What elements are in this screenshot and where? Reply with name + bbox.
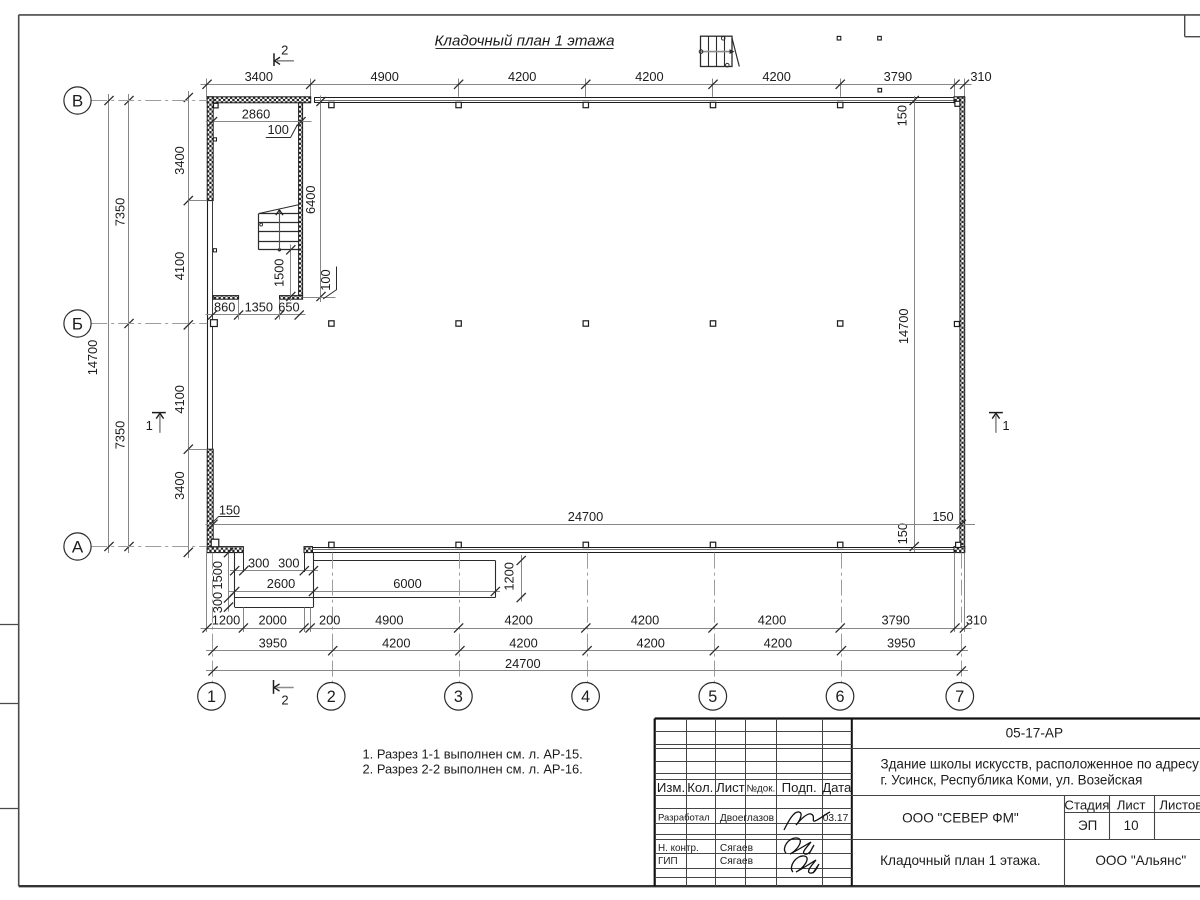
svg-text:Дата: Дата [822,780,852,795]
svg-text:05-17-АР: 05-17-АР [1006,726,1063,741]
svg-text:Сягаев: Сягаев [720,843,753,854]
svg-text:6000: 6000 [393,576,421,591]
svg-text:Подп.: Подп. [782,780,817,795]
svg-text:4900: 4900 [375,613,403,628]
svg-text:7350: 7350 [113,198,128,226]
svg-text:2: 2 [281,43,288,58]
svg-text:24700: 24700 [505,656,541,671]
svg-text:Листов: Листов [1159,797,1200,812]
svg-text:4200: 4200 [635,69,663,84]
svg-text:2000: 2000 [258,613,286,628]
svg-text:310: 310 [966,613,987,628]
svg-text:3: 3 [454,688,463,706]
svg-text:5: 5 [708,688,717,706]
svg-text:ГИП: ГИП [658,856,678,867]
svg-text:4900: 4900 [370,69,398,84]
svg-text:3790: 3790 [884,69,912,84]
svg-text:24700: 24700 [568,509,604,524]
svg-text:Б: Б [72,315,83,334]
svg-text:100: 100 [268,122,289,137]
svg-text:300: 300 [278,555,299,570]
svg-text:Н. контр.: Н. контр. [658,843,699,854]
svg-text:1350: 1350 [245,300,273,315]
svg-text:Кол.: Кол. [687,780,713,795]
svg-text:ЭП: ЭП [1078,818,1097,833]
svg-text:2. Разрез 2-2 выполнен см. л.: 2. Разрез 2-2 выполнен см. л. АР-16. [363,762,583,777]
svg-text:150: 150 [932,509,953,524]
svg-text:г. Усинск, Республика Коми, ул: г. Усинск, Республика Коми, ул. Возейска… [881,773,1143,788]
svg-text:4200: 4200 [509,636,537,651]
svg-text:4100: 4100 [172,385,187,413]
svg-text:650: 650 [278,300,299,315]
svg-text:6: 6 [835,688,844,706]
svg-text:ООО "СЕВЕР ФМ": ООО "СЕВЕР ФМ" [902,811,1019,826]
svg-text:3950: 3950 [887,636,915,651]
svg-text:7: 7 [955,688,964,706]
svg-text:4: 4 [581,688,590,706]
svg-text:1: 1 [1002,418,1009,433]
svg-text:В: В [72,92,83,111]
svg-text:Кладочный план 1 этажа.: Кладочный план 1 этажа. [880,853,1041,868]
svg-text:7350: 7350 [113,421,128,449]
svg-text:ООО "Альянс": ООО "Альянс" [1095,853,1186,868]
svg-text:200: 200 [319,613,340,628]
svg-text:Здание школы искусств, располо: Здание школы искусств, расположенное по … [881,756,1200,771]
svg-text:Лист: Лист [1117,797,1146,812]
svg-text:2: 2 [327,688,336,706]
svg-text:3400: 3400 [245,69,273,84]
svg-text:Разработал: Разработал [658,812,710,823]
svg-text:10: 10 [1124,818,1139,833]
svg-text:1200: 1200 [212,613,240,628]
svg-text:150: 150 [219,503,240,518]
svg-text:150: 150 [894,105,909,126]
svg-text:А: А [72,538,84,557]
svg-text:№док.: №док. [747,783,776,794]
svg-text:4200: 4200 [758,613,786,628]
svg-text:Двоеглазов: Двоеглазов [720,813,774,824]
svg-text:1. Разрез 1-1 выполнен см. л.: 1. Разрез 1-1 выполнен см. л. АР-15. [363,747,583,762]
svg-text:4200: 4200 [636,636,664,651]
svg-text:4200: 4200 [631,613,659,628]
svg-text:4200: 4200 [382,636,410,651]
svg-text:2: 2 [281,692,288,707]
svg-text:1: 1 [146,418,153,433]
svg-text:Кладочный план 1 этажа: Кладочный план 1 этажа [434,32,614,49]
svg-text:6400: 6400 [303,186,318,214]
svg-text:300: 300 [248,555,269,570]
svg-text:1200: 1200 [502,562,517,590]
svg-text:4200: 4200 [508,69,536,84]
svg-text:Сягаев: Сягаев [720,856,753,867]
svg-text:2600: 2600 [267,576,295,591]
svg-text:4100: 4100 [172,252,187,280]
svg-text:Стадия: Стадия [1064,797,1109,812]
svg-text:4200: 4200 [762,69,790,84]
svg-text:1: 1 [207,688,216,706]
svg-text:3400: 3400 [172,146,187,174]
svg-text:4200: 4200 [504,613,532,628]
svg-text:2860: 2860 [242,106,270,121]
svg-text:150: 150 [895,523,910,544]
svg-text:1500: 1500 [271,259,286,287]
svg-text:3400: 3400 [172,471,187,499]
svg-text:860: 860 [214,300,235,315]
svg-text:3950: 3950 [259,636,287,651]
svg-text:Изм.: Изм. [657,780,685,795]
svg-text:100: 100 [318,269,333,290]
svg-text:3790: 3790 [881,613,909,628]
svg-text:14700: 14700 [85,340,100,376]
svg-text:Лист: Лист [716,780,745,795]
svg-text:14700: 14700 [896,309,911,345]
svg-text:4200: 4200 [764,636,792,651]
svg-text:310: 310 [970,69,991,84]
